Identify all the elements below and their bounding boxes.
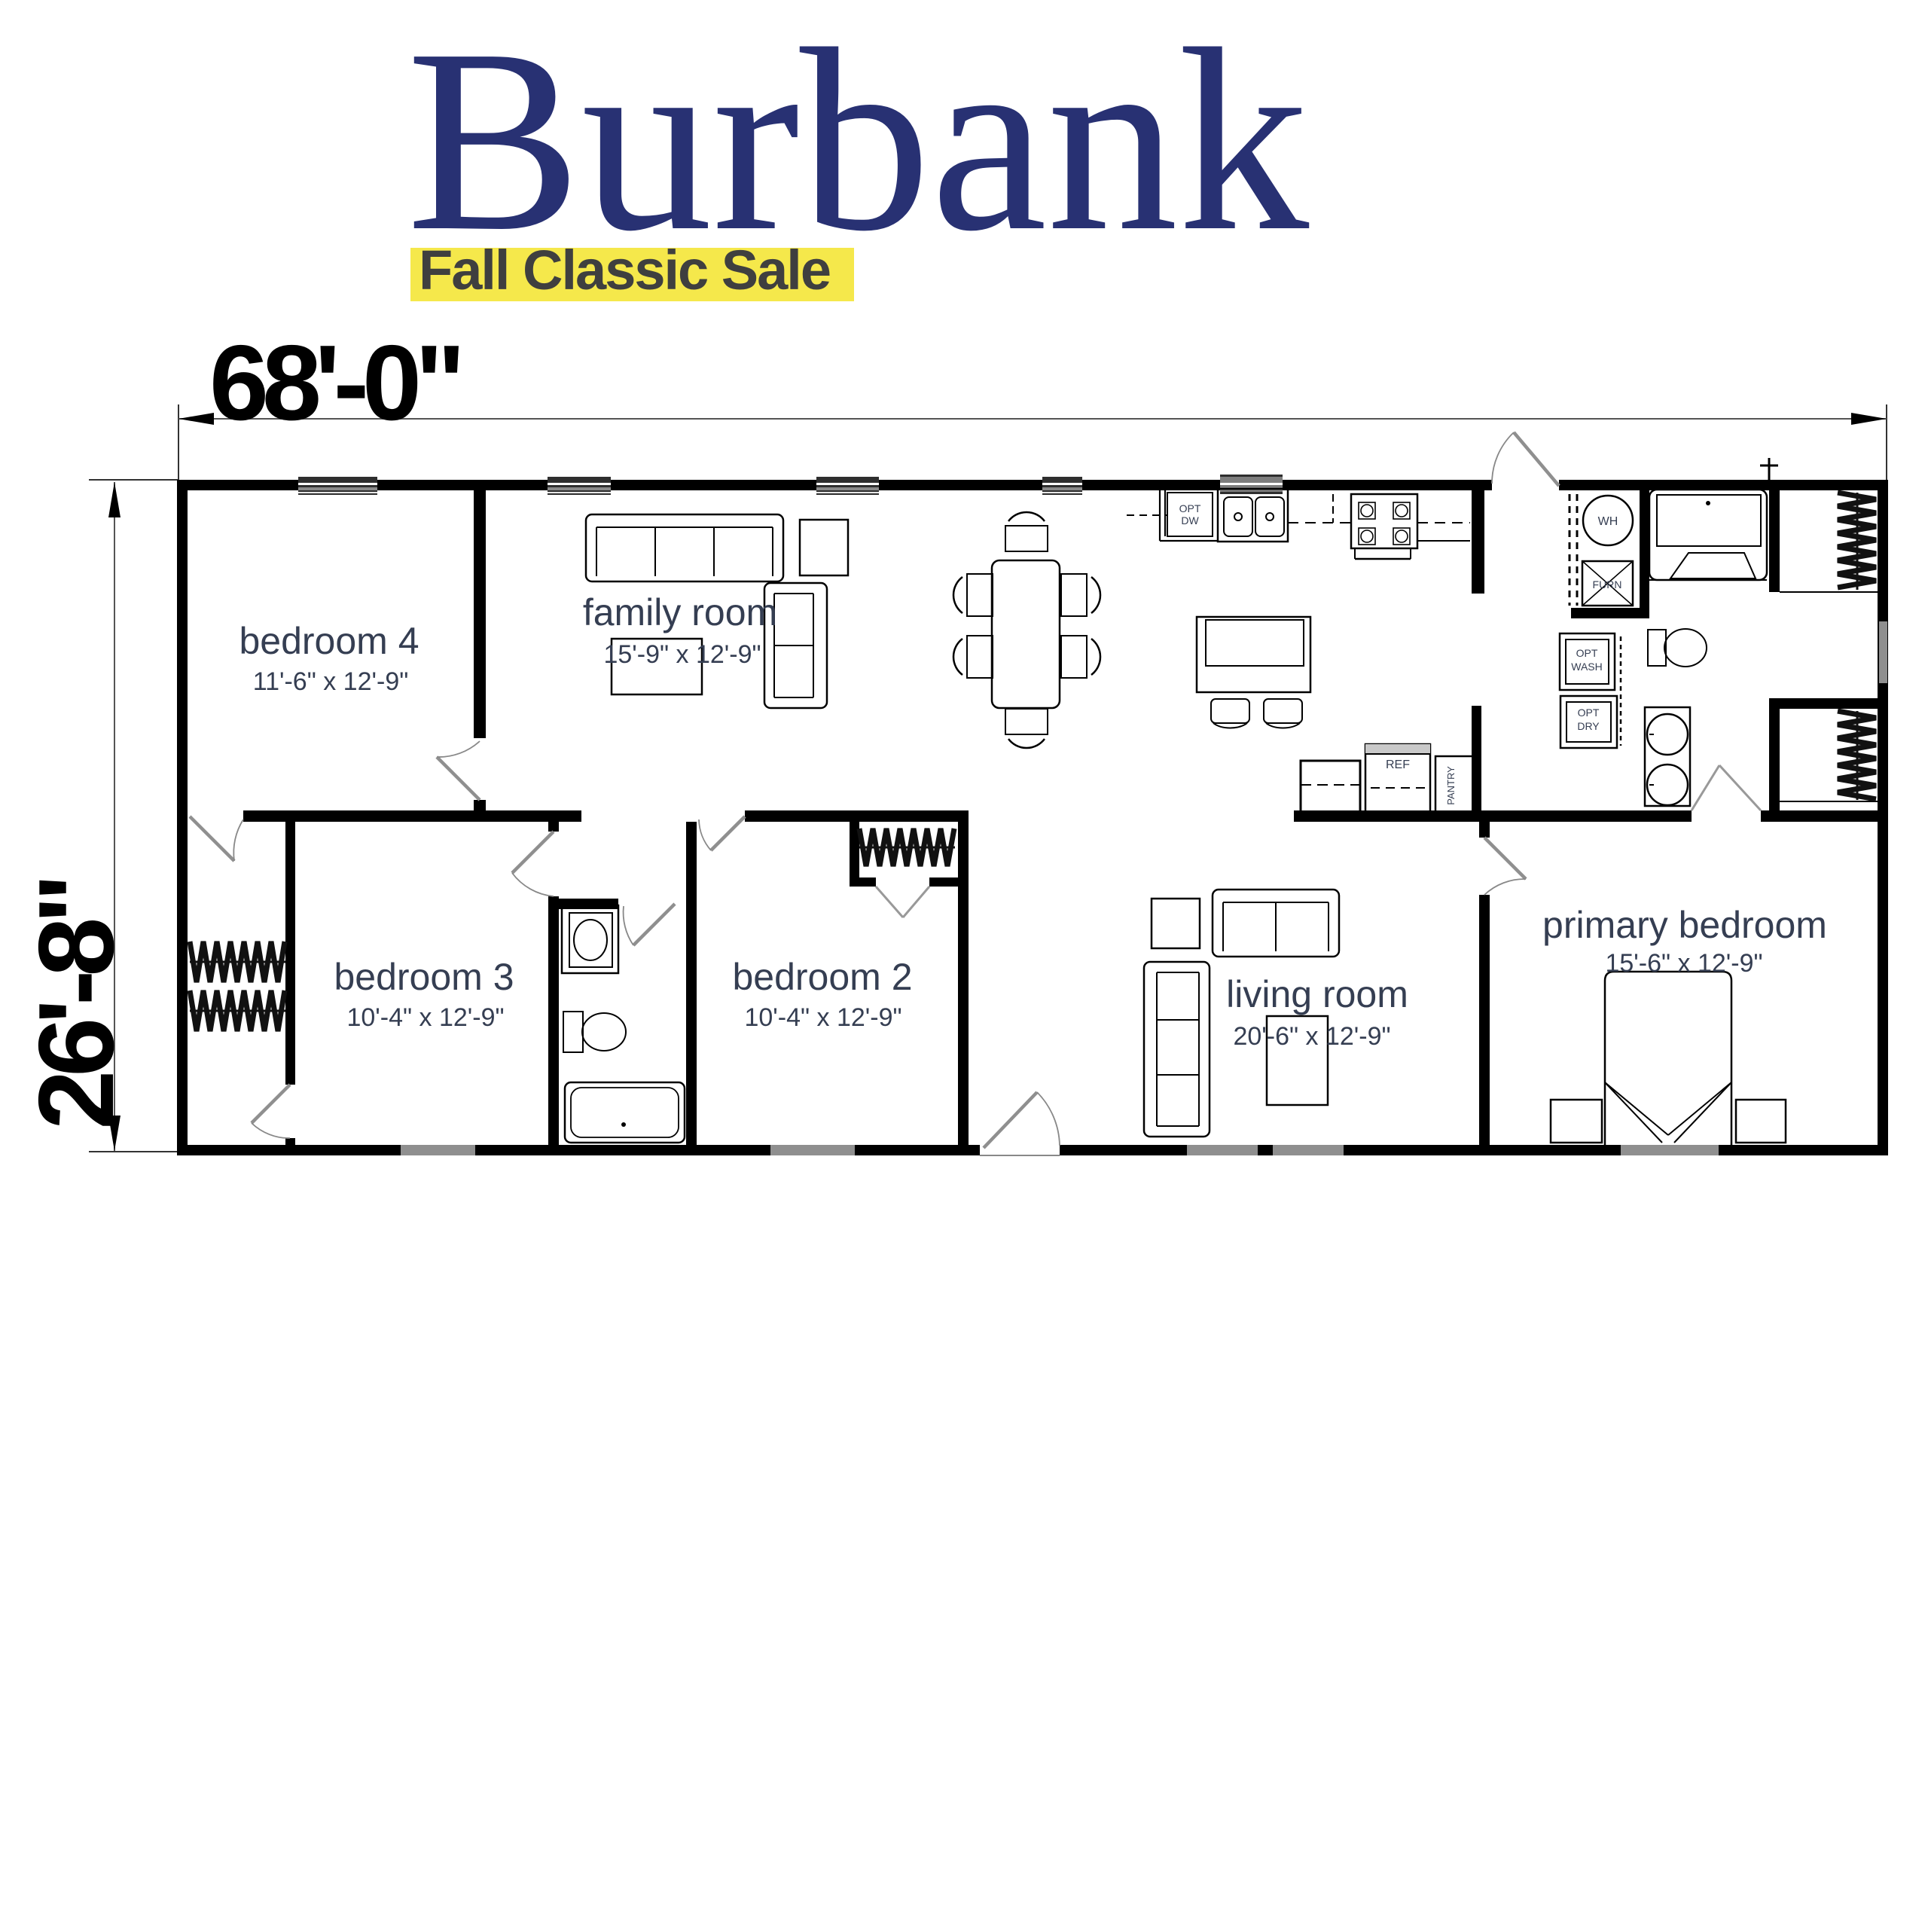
svg-text:DRY: DRY [1577, 720, 1600, 732]
svg-text:family room: family room [583, 591, 777, 633]
svg-text:68'-0": 68'-0" [209, 323, 459, 443]
svg-text:WASH: WASH [1571, 661, 1602, 673]
svg-text:26'-8": 26'-8" [17, 880, 136, 1129]
svg-text:WH: WH [1598, 515, 1618, 528]
svg-text:living room: living room [1226, 973, 1408, 1015]
svg-text:primary bedroom: primary bedroom [1542, 904, 1827, 946]
svg-text:10'-4" x 12'-9": 10'-4" x 12'-9" [744, 1003, 901, 1032]
svg-text:bedroom 3: bedroom 3 [334, 956, 514, 998]
svg-text:10'-4" x 12'-9": 10'-4" x 12'-9" [346, 1003, 504, 1032]
svg-text:OPT: OPT [1576, 647, 1598, 659]
svg-text:OPT: OPT [1179, 502, 1201, 514]
svg-text:REF: REF [1386, 758, 1410, 771]
svg-text:11'-6" x 12'-9": 11'-6" x 12'-9" [253, 667, 409, 696]
svg-text:15'-6" x 12'-9": 15'-6" x 12'-9" [1605, 949, 1762, 978]
svg-text:15'-9" x 12'-9": 15'-9" x 12'-9" [603, 640, 761, 669]
svg-text:OPT: OPT [1578, 707, 1600, 719]
svg-text:bedroom 2: bedroom 2 [732, 956, 912, 998]
svg-text:FURN: FURN [1593, 578, 1622, 591]
svg-text:PANTRY: PANTRY [1445, 766, 1457, 805]
svg-text:Fall Classic Sale: Fall Classic Sale [419, 239, 830, 301]
svg-text:DW: DW [1181, 514, 1199, 526]
svg-text:20'-6" x 12'-9": 20'-6" x 12'-9" [1233, 1022, 1390, 1051]
svg-text:bedroom 4: bedroom 4 [239, 620, 419, 662]
